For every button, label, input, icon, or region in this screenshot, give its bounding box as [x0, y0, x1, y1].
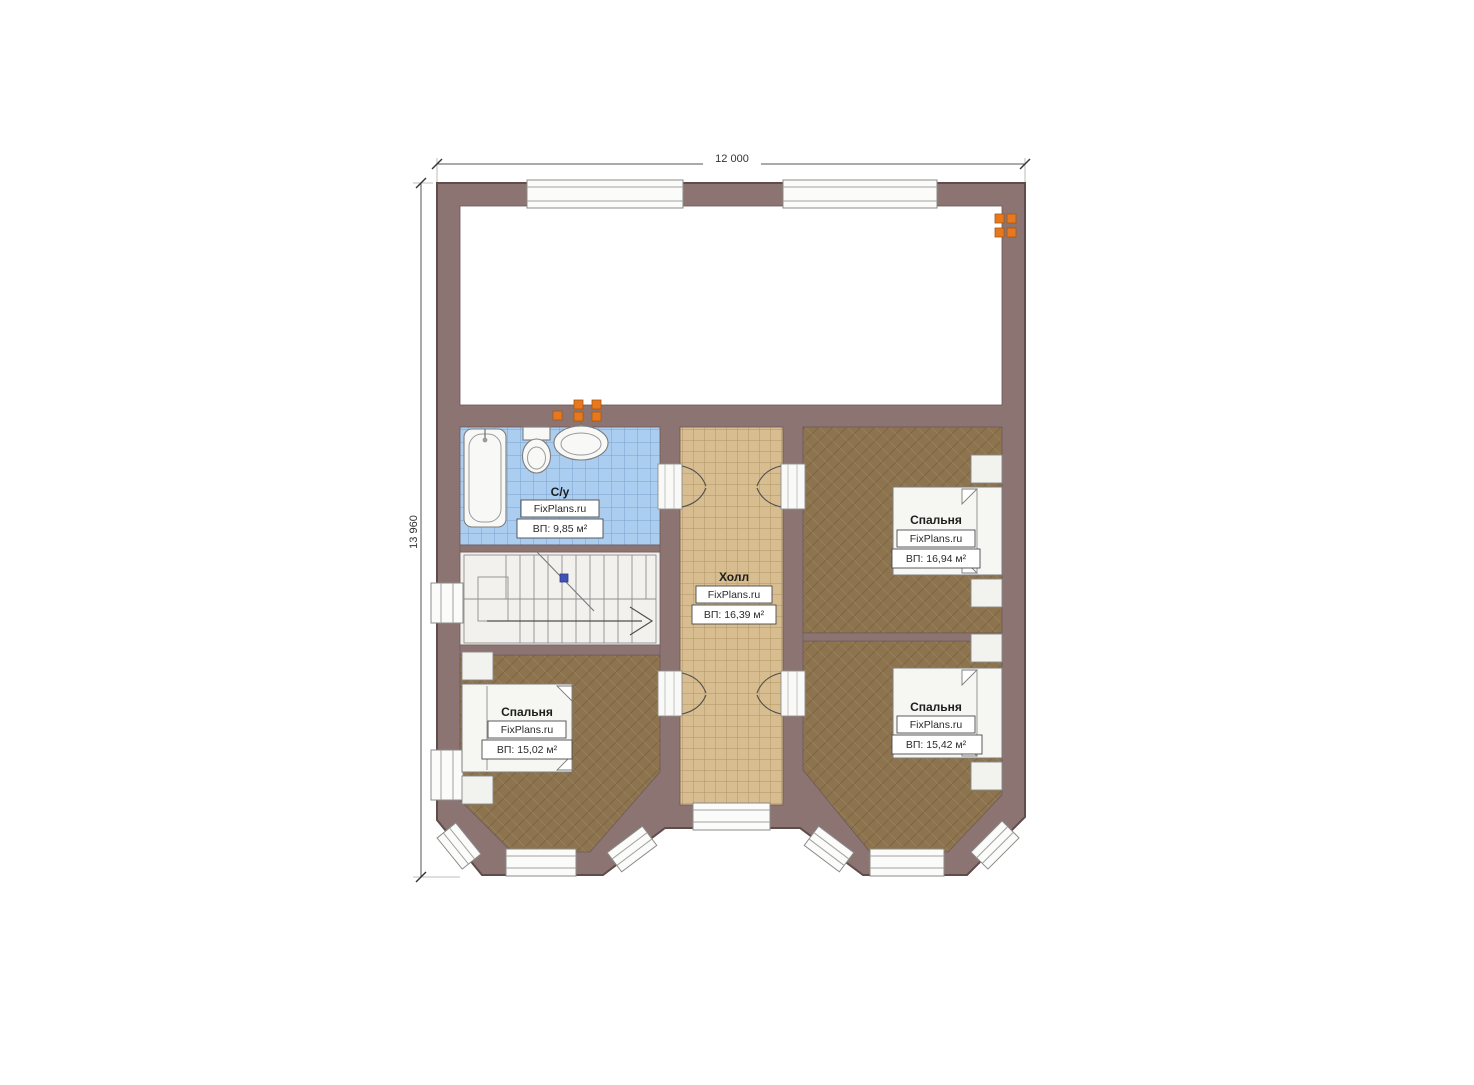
window-hall-bottom [693, 803, 770, 830]
bathtub [464, 429, 506, 527]
watermark: FixPlans.ru [708, 589, 761, 601]
watermark: FixPlans.ru [910, 719, 963, 731]
room-top-open-area [460, 206, 1002, 405]
stair-node-marker [560, 574, 568, 582]
room-name: Холл [719, 570, 749, 584]
window-top-left [527, 180, 683, 208]
watermark: FixPlans.ru [501, 724, 554, 736]
floor-plan-page: 12 000 13 960 [0, 0, 1474, 1080]
room-name: Спальня [501, 705, 553, 719]
room-area: ВП: 16,39 м² [704, 609, 765, 621]
room-area: ВП: 15,42 м² [906, 739, 967, 751]
window-stairs-left-wall [431, 583, 463, 623]
window-right-bay-bottom [870, 849, 944, 876]
watermark: FixPlans.ru [910, 533, 963, 545]
stair-zone-floor [460, 552, 660, 645]
room-name: Спальня [910, 513, 962, 527]
floor-plan: 12 000 13 960 [0, 0, 1474, 1080]
room-name: Спальня [910, 700, 962, 714]
room-area: ВП: 9,85 м² [533, 523, 588, 535]
toilet [523, 427, 551, 473]
window-left-bay-bottom [506, 849, 576, 876]
dimension-width-label: 12 000 [715, 153, 749, 165]
window-top-right [783, 180, 937, 208]
dimension-height-label: 13 960 [408, 515, 420, 549]
room-area: ВП: 15,02 м² [497, 744, 558, 756]
watermark: FixPlans.ru [534, 503, 587, 515]
room-area: ВП: 16,94 м² [906, 553, 967, 565]
window-bedroom-left-wall [431, 750, 463, 800]
dimension-top: 12 000 [432, 150, 1030, 183]
room-name: С/у [551, 485, 570, 499]
wall-bathroom-stairs [460, 545, 660, 552]
